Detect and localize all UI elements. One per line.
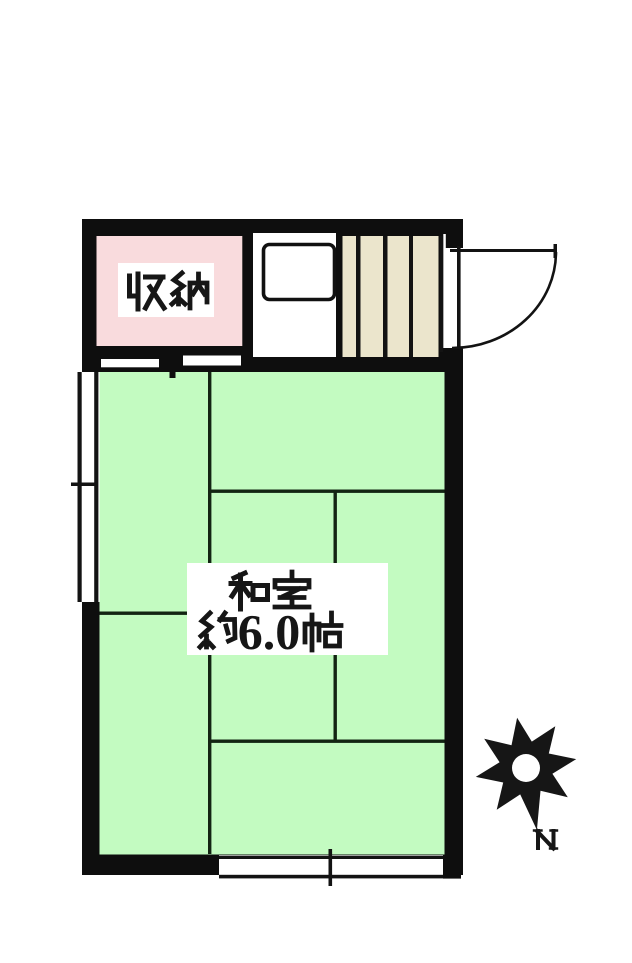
svg-text:6.0: 6.0 bbox=[238, 604, 301, 660]
